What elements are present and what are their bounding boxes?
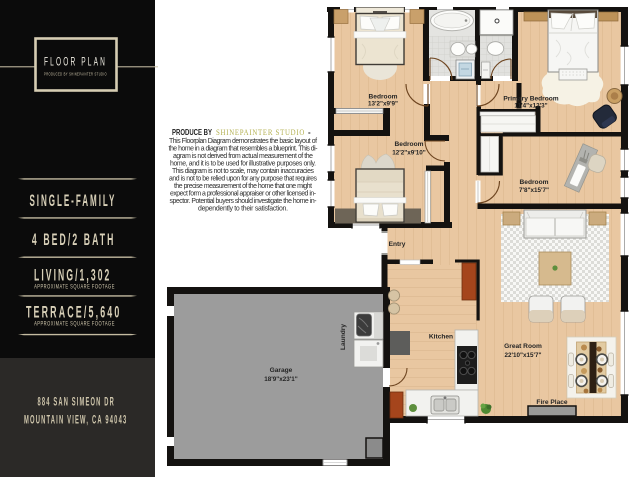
- svg-text:MOUNTAIN VIEW, CA 94043: MOUNTAIN VIEW, CA 94043: [24, 413, 127, 427]
- svg-text:APPROXIMATE SQUARE FOOTAGE: APPROXIMATE SQUARE FOOTAGE: [34, 321, 115, 328]
- svg-text:4 BED/2 BATH: 4 BED/2 BATH: [32, 230, 116, 249]
- svg-text:Fire Place: Fire Place: [536, 399, 567, 406]
- svg-text:PRODUCE BY: PRODUCE BY: [172, 128, 212, 137]
- svg-text:spector. Potential buyers shou: spector. Potential buyers should investi…: [170, 198, 317, 205]
- svg-text:Bedroom: Bedroom: [395, 141, 424, 148]
- svg-text:TERRACE/5,640: TERRACE/5,640: [26, 303, 122, 322]
- svg-text:-: -: [308, 128, 311, 137]
- svg-text:Laundry: Laundry: [340, 324, 347, 350]
- svg-text:the precise measurement of the: the precise measurement of the home that…: [174, 183, 312, 190]
- svg-text:Primary Bedroom: Primary Bedroom: [503, 96, 558, 103]
- svg-text:Bedroom: Bedroom: [369, 94, 398, 101]
- svg-text:SHINEPAINTER STUDIO: SHINEPAINTER STUDIO: [216, 127, 305, 137]
- svg-text:Great Room: Great Room: [504, 343, 542, 350]
- svg-text:13'2"x9'9": 13'2"x9'9": [368, 101, 398, 108]
- svg-text:18'9"x23'1": 18'9"x23'1": [264, 376, 297, 383]
- svg-text:expect form a professional app: expect form a professional appraiser or …: [170, 191, 316, 198]
- svg-text:APPROXIMATE SQUARE FOOTAGE: APPROXIMATE SQUARE FOOTAGE: [34, 284, 115, 291]
- svg-text:Bedroom: Bedroom: [520, 179, 549, 186]
- svg-text:7'8"x15'7": 7'8"x15'7": [519, 187, 549, 194]
- svg-text:home, and it is to be used for: home, and it is to be used for illustrat…: [170, 161, 316, 168]
- svg-text:PRODUCED BY SHINEPAINTER STUDI: PRODUCED BY SHINEPAINTER STUDIO: [44, 72, 107, 77]
- svg-text:FLOOR PLAN: FLOOR PLAN: [44, 56, 107, 70]
- svg-text:SINGLE-FAMILY: SINGLE-FAMILY: [29, 191, 116, 210]
- svg-text:This diagram is not to scale,: This diagram is not to scale, may contai…: [172, 168, 315, 175]
- svg-text:Garage: Garage: [270, 367, 293, 374]
- svg-text:This Floorplan Diagram demonst: This Floorplan Diagram demonstrates the …: [169, 138, 317, 145]
- svg-text:22'10"x15'7": 22'10"x15'7": [505, 352, 542, 359]
- svg-text:dependently to their satisfact: dependently to their satisfaction.: [198, 206, 288, 213]
- svg-text:12'2"x9'10": 12'2"x9'10": [392, 150, 425, 157]
- svg-text:11'4"x13'3": 11'4"x13'3": [514, 103, 547, 110]
- svg-text:Kitchen: Kitchen: [429, 334, 453, 341]
- svg-text:and is not to be relied upon f: and is not to be relied upon for any pur…: [169, 176, 318, 183]
- svg-text:LIVING/1,302: LIVING/1,302: [34, 265, 111, 284]
- svg-text:agram is not derived from actu: agram is not derived from actual measure…: [173, 153, 313, 160]
- svg-text:Entry: Entry: [389, 241, 406, 248]
- svg-text:the home in a diagram that res: the home in a diagram that resembles a b…: [169, 146, 318, 153]
- svg-text:884 SAN SIMEON DR: 884 SAN SIMEON DR: [37, 395, 114, 409]
